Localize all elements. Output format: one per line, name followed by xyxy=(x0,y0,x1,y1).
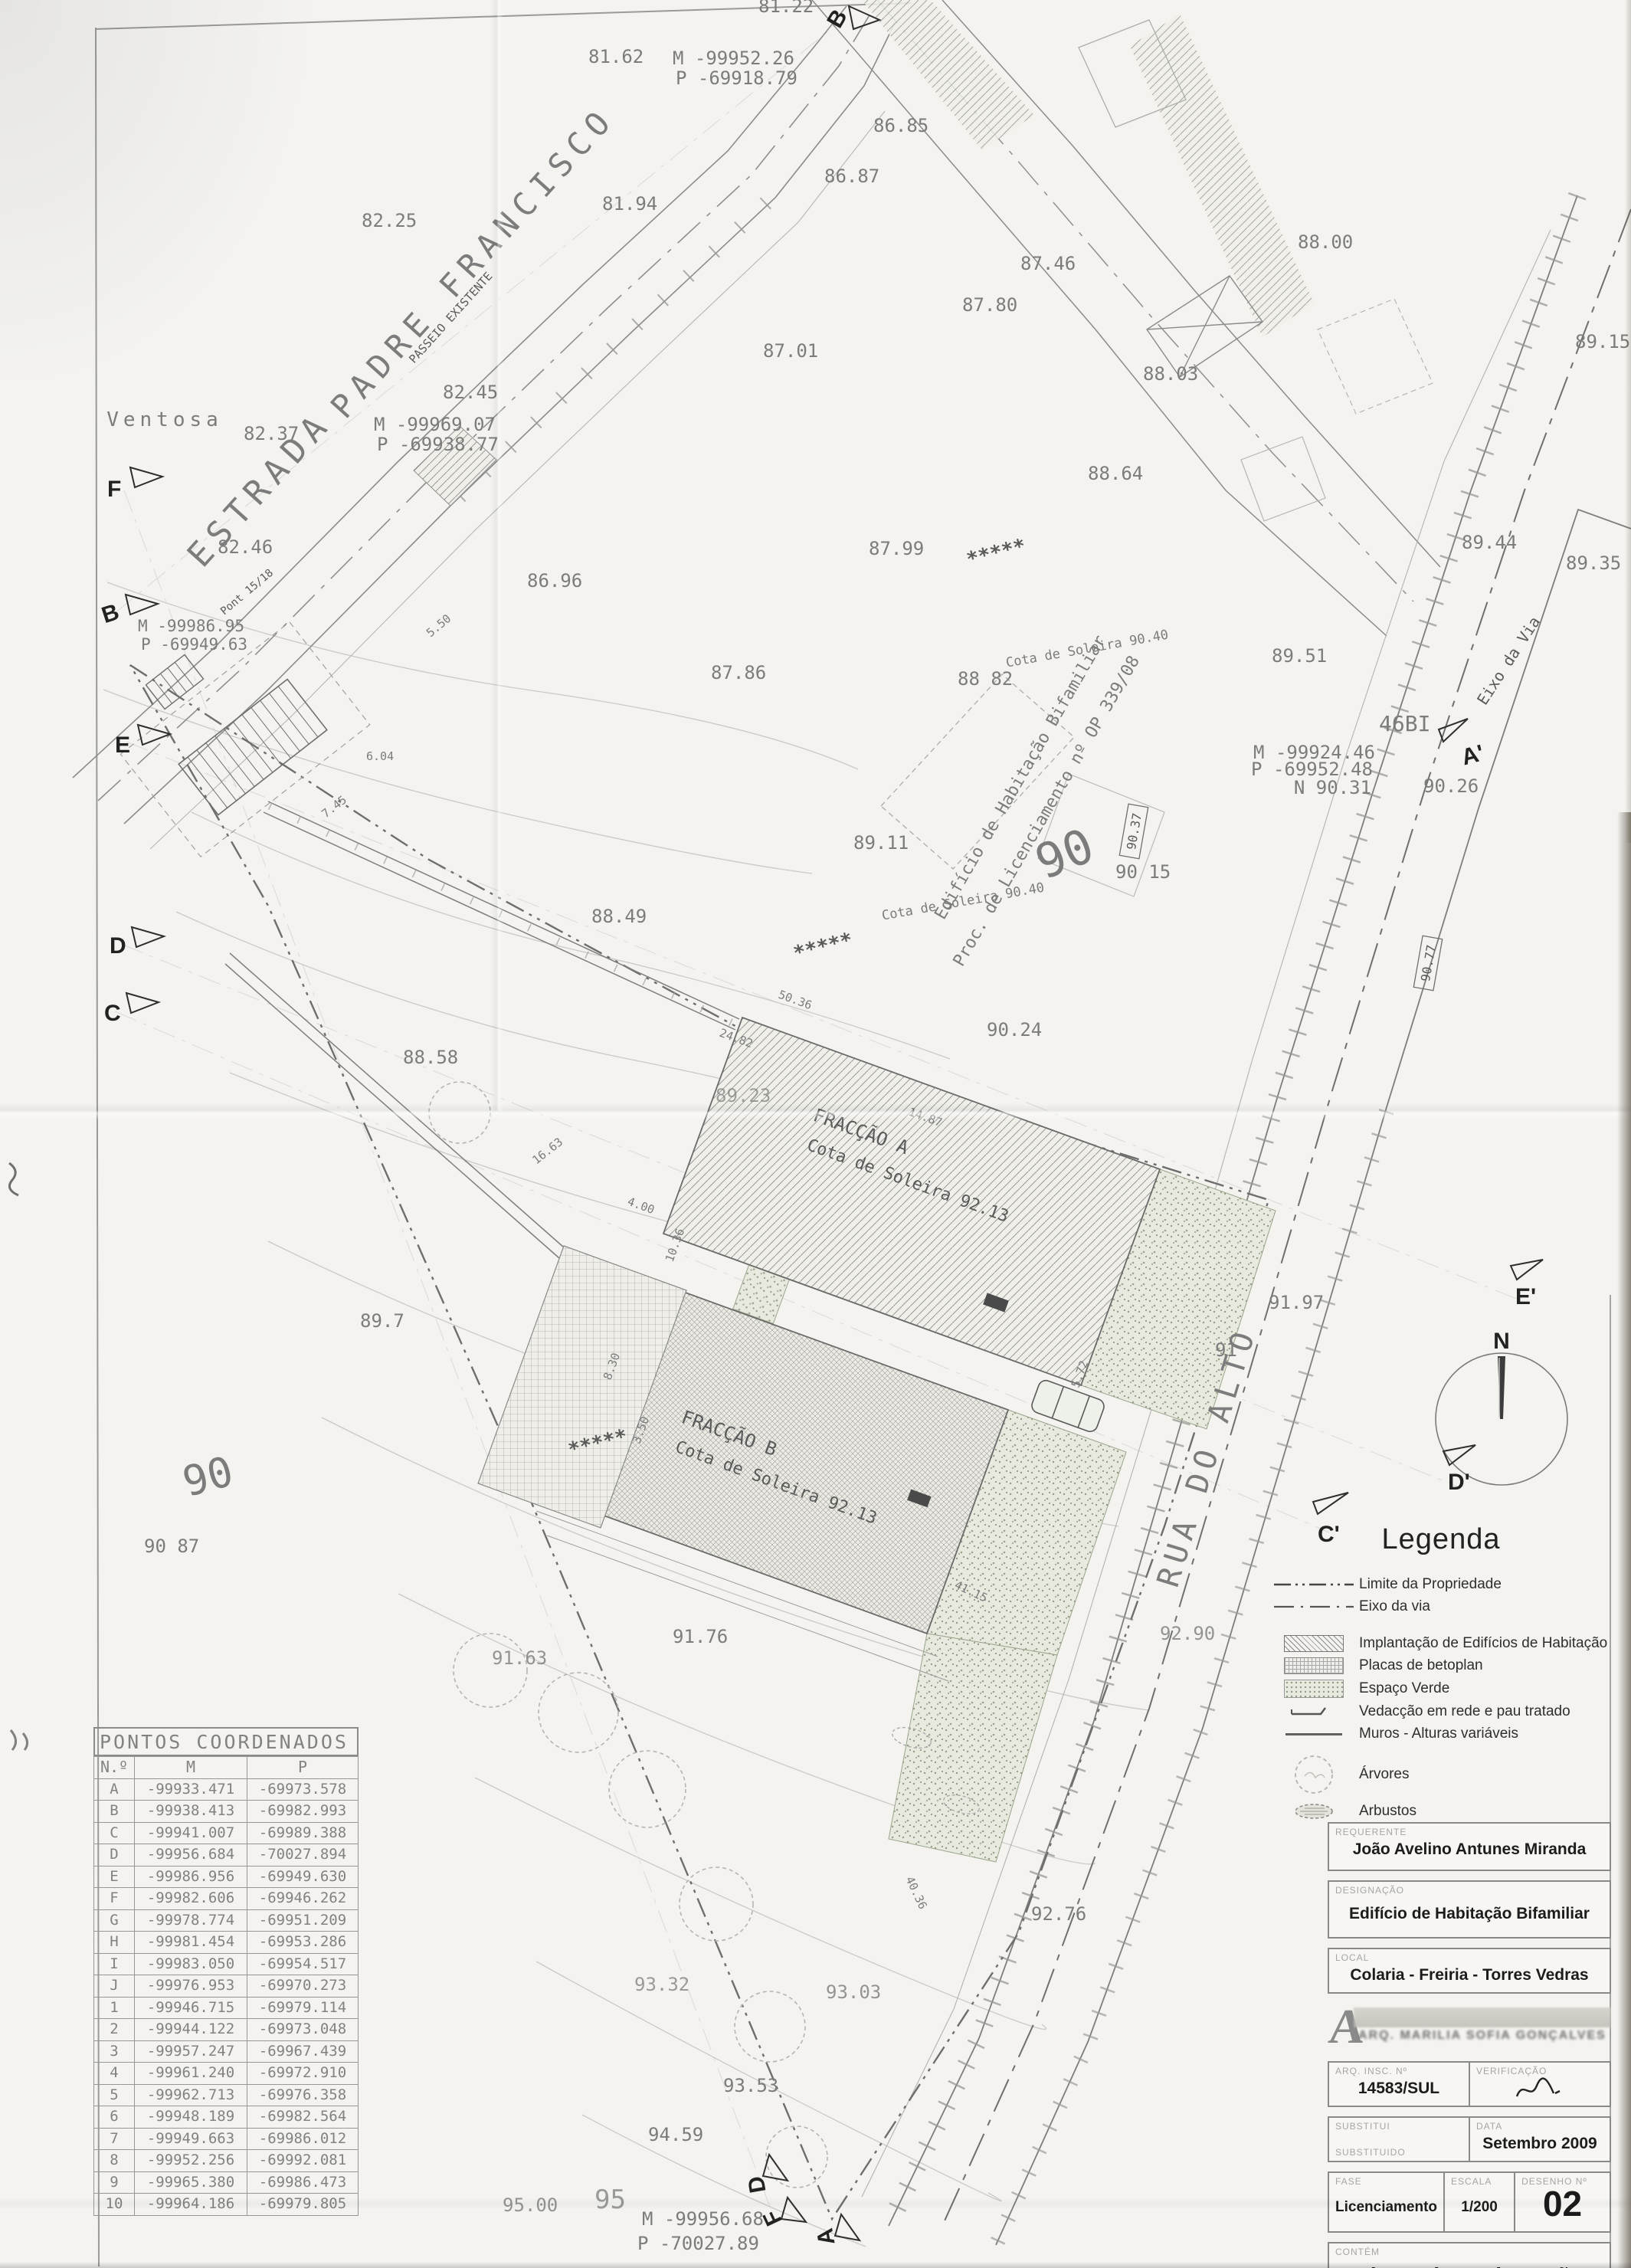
data-cell: DATA Setembro 2009 xyxy=(1469,2118,1610,2161)
table-row: J-99976.953-69970.273 xyxy=(94,1975,359,1998)
table-row: C-99941.007-69989.388 xyxy=(94,1822,359,1844)
contour-90-b: 90 xyxy=(178,1447,238,1506)
svg-text:89.23: 89.23 xyxy=(716,1085,771,1106)
designacao-value: Edifício de Habitação Bifamiliar xyxy=(1335,1896,1603,1928)
svg-text:87.86: 87.86 xyxy=(711,662,766,683)
stars-1: ***** xyxy=(965,535,1028,572)
svg-text:89.44: 89.44 xyxy=(1462,532,1517,553)
marker-D-bottom: D xyxy=(743,2175,771,2195)
svg-text:91.76: 91.76 xyxy=(673,1626,728,1647)
table-row: 4-99961.240-69972.910 xyxy=(94,2063,359,2085)
marker-B-top: B xyxy=(822,5,852,32)
verificacao-cell: VERIFICAÇÃO xyxy=(1469,2063,1610,2106)
svg-text:5.50: 5.50 xyxy=(424,611,454,640)
desenho-value: 02 xyxy=(1521,2187,1603,2220)
site-plan-sheet: N 90.37 90.77 F xyxy=(0,0,1631,2268)
svg-text:50.36: 50.36 xyxy=(777,988,814,1012)
svg-text:40.36: 40.36 xyxy=(902,1874,929,1912)
svg-text:89.35: 89.35 xyxy=(1566,552,1621,574)
svg-text:89.7: 89.7 xyxy=(360,1310,404,1332)
architect-logo: A ARQ. MARILIA SOFIA GONÇALVES COELHO xyxy=(1328,2003,1611,2052)
table-row: 3-99957.247-69967.439 xyxy=(94,2040,359,2063)
coord-bottom-p: P -70027.89 xyxy=(637,2233,759,2254)
signature-scribble xyxy=(1509,2076,1570,2102)
svg-text:95: 95 xyxy=(594,2184,626,2215)
arq-insc-value: 14583/SUL xyxy=(1335,2076,1462,2102)
svg-text:86.87: 86.87 xyxy=(824,166,879,187)
legend-item-muros: Muros - Alturas variáveis xyxy=(1269,1726,1613,1742)
table-row: 2-99944.122-69973.048 xyxy=(94,2019,359,2041)
arq-insc-cell: ARQ. INSC. Nº 14583/SUL xyxy=(1329,2063,1469,2106)
svg-text:6.04: 6.04 xyxy=(366,749,394,763)
designacao-label: DESIGNAÇÃO xyxy=(1335,1885,1603,1896)
marker-F: F xyxy=(107,477,121,502)
svg-text:81.94: 81.94 xyxy=(602,193,657,215)
table-row: 10-99964.186-69979.805 xyxy=(94,2194,359,2216)
svg-text:86.96: 86.96 xyxy=(527,570,582,592)
local-box: LOCAL Colaria - Freiria - Torres Vedras xyxy=(1328,1948,1611,1994)
label-pont: Pont 15/18 xyxy=(218,567,276,618)
legend: Legenda Limite da Propriedade Eixo da vi… xyxy=(1269,1523,1613,1827)
table-row: 7-99949.663-69986.012 xyxy=(94,2128,359,2150)
north-label: N xyxy=(1493,1329,1510,1354)
svg-text:81.22: 81.22 xyxy=(758,0,814,17)
svg-text:7.45: 7.45 xyxy=(319,793,349,821)
substitui-cell: SUBSTITUI SUBSTITUIDO xyxy=(1329,2118,1469,2161)
escala-value: 1/200 xyxy=(1451,2187,1508,2220)
svg-text:87.01: 87.01 xyxy=(763,340,818,362)
legend-item-betoplan: Placas de betoplan xyxy=(1269,1657,1613,1674)
svg-text:92.90: 92.90 xyxy=(1160,1623,1215,1644)
coord-right-n: N 90.31 xyxy=(1294,777,1371,798)
svg-text:91: 91 xyxy=(1215,1339,1237,1361)
table-row: E-99986.956-69949.630 xyxy=(94,1866,359,1888)
legend-item-limite: Limite da Propriedade xyxy=(1269,1576,1613,1593)
coord-west-m: M -99986.95 xyxy=(138,617,244,635)
legend-item-eixo: Eixo da via xyxy=(1269,1598,1613,1615)
svg-text:88.64: 88.64 xyxy=(1088,463,1143,484)
coord-top-m: M -99952.26 xyxy=(673,48,794,69)
svg-text:95.00: 95.00 xyxy=(503,2194,558,2216)
contem-box: CONTÉM Planta de Implantação xyxy=(1328,2242,1611,2268)
substitui-data-box: SUBSTITUI SUBSTITUIDO DATA Setembro 2009 xyxy=(1328,2116,1611,2162)
table-row: D-99956.684-70027.894 xyxy=(94,1844,359,1867)
svg-text:93.32: 93.32 xyxy=(634,1974,689,1995)
street-eixo-da-via: Eixo da Via xyxy=(1473,613,1544,708)
svg-text:89.11: 89.11 xyxy=(853,832,909,854)
data-value: Setembro 2009 xyxy=(1476,2132,1603,2158)
coord-top-p: P -69918.79 xyxy=(676,67,797,89)
svg-text:93.03: 93.03 xyxy=(826,1981,881,2003)
table-row: I-99983.050-69954.517 xyxy=(94,1953,359,1975)
place-ventosa: Ventosa xyxy=(106,408,223,431)
svg-text:89.15: 89.15 xyxy=(1575,331,1630,352)
table-row: B-99938.413-69982.993 xyxy=(94,1801,359,1823)
svg-text:16.63: 16.63 xyxy=(529,1135,565,1167)
coord-ul-p: P -69938.77 xyxy=(377,434,499,455)
stipple-swatch xyxy=(1284,1680,1344,1698)
table-row: F-99982.606-69946.262 xyxy=(94,1888,359,1910)
marker-D-prime: D' xyxy=(1448,1470,1470,1495)
label-house-number: 46BI xyxy=(1379,711,1430,736)
table-row: G-99978.774-69951.209 xyxy=(94,1909,359,1932)
table-row: H-99981.454-69953.286 xyxy=(94,1932,359,1954)
requerente-value: João Avelino Antunes Miranda xyxy=(1335,1837,1603,1863)
coord-bottom-m: M -99956.68 xyxy=(642,2208,764,2230)
hatch-swatch xyxy=(1284,1635,1344,1652)
marker-A-bottom: A xyxy=(812,2227,840,2247)
marker-C: C xyxy=(104,1001,121,1026)
svg-text:90 15: 90 15 xyxy=(1115,861,1171,883)
wall-symbol xyxy=(1285,1733,1342,1735)
svg-text:82.45: 82.45 xyxy=(443,382,498,403)
local-value: Colaria - Freiria - Torres Vedras xyxy=(1335,1963,1603,1989)
legend-item-implantacao: Implantação de Edifícios de Habitação xyxy=(1269,1635,1613,1652)
table-row: 9-99965.380-69986.473 xyxy=(94,2171,359,2194)
coord-ul-m: M -99969.07 xyxy=(374,414,496,435)
svg-text:89.51: 89.51 xyxy=(1272,645,1327,667)
legend-item-arbustos: Arbustos xyxy=(1269,1801,1613,1821)
fence-symbol xyxy=(1269,1705,1359,1719)
north-arrow: N xyxy=(1436,1329,1567,1485)
desenho-cell: DESENHO Nº 02 xyxy=(1514,2173,1610,2231)
stars-2: ***** xyxy=(791,929,855,965)
marker-B: B xyxy=(99,599,123,628)
fase-cell: FASE Licenciamento xyxy=(1329,2173,1443,2231)
svg-text:87.46: 87.46 xyxy=(1020,253,1076,274)
boxed-level-1: 90.37 xyxy=(1119,804,1148,858)
table-row: 1-99946.715-69979.114 xyxy=(94,1997,359,2019)
marker-D: D xyxy=(110,933,126,959)
svg-text:81.62: 81.62 xyxy=(588,46,644,67)
legend-item-arvores: Árvores xyxy=(1269,1753,1613,1796)
svg-text:86.85: 86.85 xyxy=(873,115,928,136)
svg-text:82.46: 82.46 xyxy=(218,536,273,558)
svg-text:93.53: 93.53 xyxy=(723,2075,778,2096)
local-label: LOCAL xyxy=(1335,1952,1603,1963)
coord-west-p: P -69949.63 xyxy=(141,635,247,654)
svg-text:90 87: 90 87 xyxy=(144,1535,199,1557)
fase-value: Licenciamento xyxy=(1335,2187,1437,2220)
svg-text:91.63: 91.63 xyxy=(492,1647,547,1669)
escala-cell: ESCALA 1/200 xyxy=(1443,2173,1514,2231)
eixo-line-symbol xyxy=(1269,1603,1359,1611)
street-padre-francisco: PADRE FRANCISCO xyxy=(323,99,623,425)
tree-symbol xyxy=(1269,1753,1359,1796)
coordinates-table-title: PONTOS COORDENADOS xyxy=(93,1727,359,1756)
table-row: 5-99962.713-69976.358 xyxy=(94,2084,359,2106)
legend-item-espaco-verde: Espaço Verde xyxy=(1269,1680,1613,1698)
svg-text:88.58: 88.58 xyxy=(403,1047,458,1068)
svg-text:88.00: 88.00 xyxy=(1298,231,1353,253)
marker-E-prime: E' xyxy=(1515,1284,1536,1309)
requerente-label: REQUERENTE xyxy=(1335,1827,1603,1837)
marker-E: E xyxy=(115,733,130,758)
svg-text:88.03: 88.03 xyxy=(1143,363,1198,385)
table-row: A-99933.471-69973.578 xyxy=(94,1778,359,1801)
shrub-symbol xyxy=(1269,1801,1359,1821)
svg-text:94.59: 94.59 xyxy=(648,2124,703,2145)
svg-text:87.99: 87.99 xyxy=(869,538,924,559)
svg-text:92.76: 92.76 xyxy=(1031,1903,1086,1925)
requerente-box: REQUERENTE João Avelino Antunes Miranda xyxy=(1328,1822,1611,1871)
pen-marks xyxy=(9,1163,28,1750)
svg-text:90.24: 90.24 xyxy=(987,1019,1042,1041)
svg-text:87.80: 87.80 xyxy=(962,294,1017,316)
table-row: 6-99948.189-69982.564 xyxy=(94,2106,359,2129)
legend-item-vedacao: Vedacção em rede e pau tratado xyxy=(1269,1703,1613,1720)
contem-value: Planta de Implantação xyxy=(1335,2257,1603,2268)
title-block: REQUERENTE João Avelino Antunes Miranda … xyxy=(1328,1822,1611,2268)
designacao-box: DESIGNAÇÃO Edifício de Habitação Bifamil… xyxy=(1328,1880,1611,1939)
limite-line-symbol xyxy=(1269,1581,1359,1588)
svg-text:88 82: 88 82 xyxy=(958,668,1013,690)
label-neighbor-2: Proc. de Licenciamento nº OP 339/08 xyxy=(950,653,1144,970)
coordinates-table: PONTOS COORDENADOS N.ºMP A-99933.471-699… xyxy=(93,1727,359,2216)
svg-text:4.00: 4.00 xyxy=(626,1195,657,1217)
table-row: 8-99952.256-69992.081 xyxy=(94,2150,359,2172)
svg-text:82.25: 82.25 xyxy=(362,210,417,231)
marker-A-prime: A' xyxy=(1459,740,1486,770)
table-header-row: N.ºMP xyxy=(94,1757,359,1779)
svg-text:88.49: 88.49 xyxy=(591,906,647,927)
insc-verificacao-box: ARQ. INSC. Nº 14583/SUL VERIFICAÇÃO xyxy=(1328,2061,1611,2107)
boxed-level-2: 90.77 xyxy=(1413,936,1442,990)
architect-name: ARQ. MARILIA SOFIA GONÇALVES COELHO xyxy=(1358,2029,1611,2043)
svg-text:91.97: 91.97 xyxy=(1269,1292,1324,1313)
fase-escala-desenho-box: FASE Licenciamento ESCALA 1/200 DESENHO … xyxy=(1328,2171,1611,2233)
logo-band xyxy=(1354,2007,1611,2027)
svg-text:82.37: 82.37 xyxy=(244,423,299,444)
svg-text:90.26: 90.26 xyxy=(1423,775,1479,797)
legend-title: Legenda xyxy=(1269,1523,1613,1556)
grid-swatch xyxy=(1284,1657,1344,1674)
access-walls xyxy=(225,801,739,1258)
